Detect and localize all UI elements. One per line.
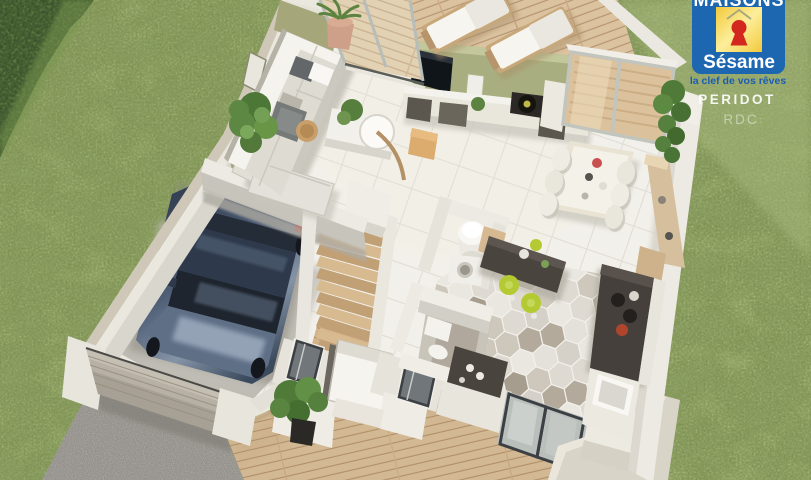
svg-text:Sésame: Sésame bbox=[703, 52, 775, 73]
svg-text:PERIDOT: PERIDOT bbox=[698, 92, 776, 107]
svg-text:RDC: RDC bbox=[723, 112, 758, 127]
svg-text:la clef de vos rêves: la clef de vos rêves bbox=[690, 75, 786, 87]
